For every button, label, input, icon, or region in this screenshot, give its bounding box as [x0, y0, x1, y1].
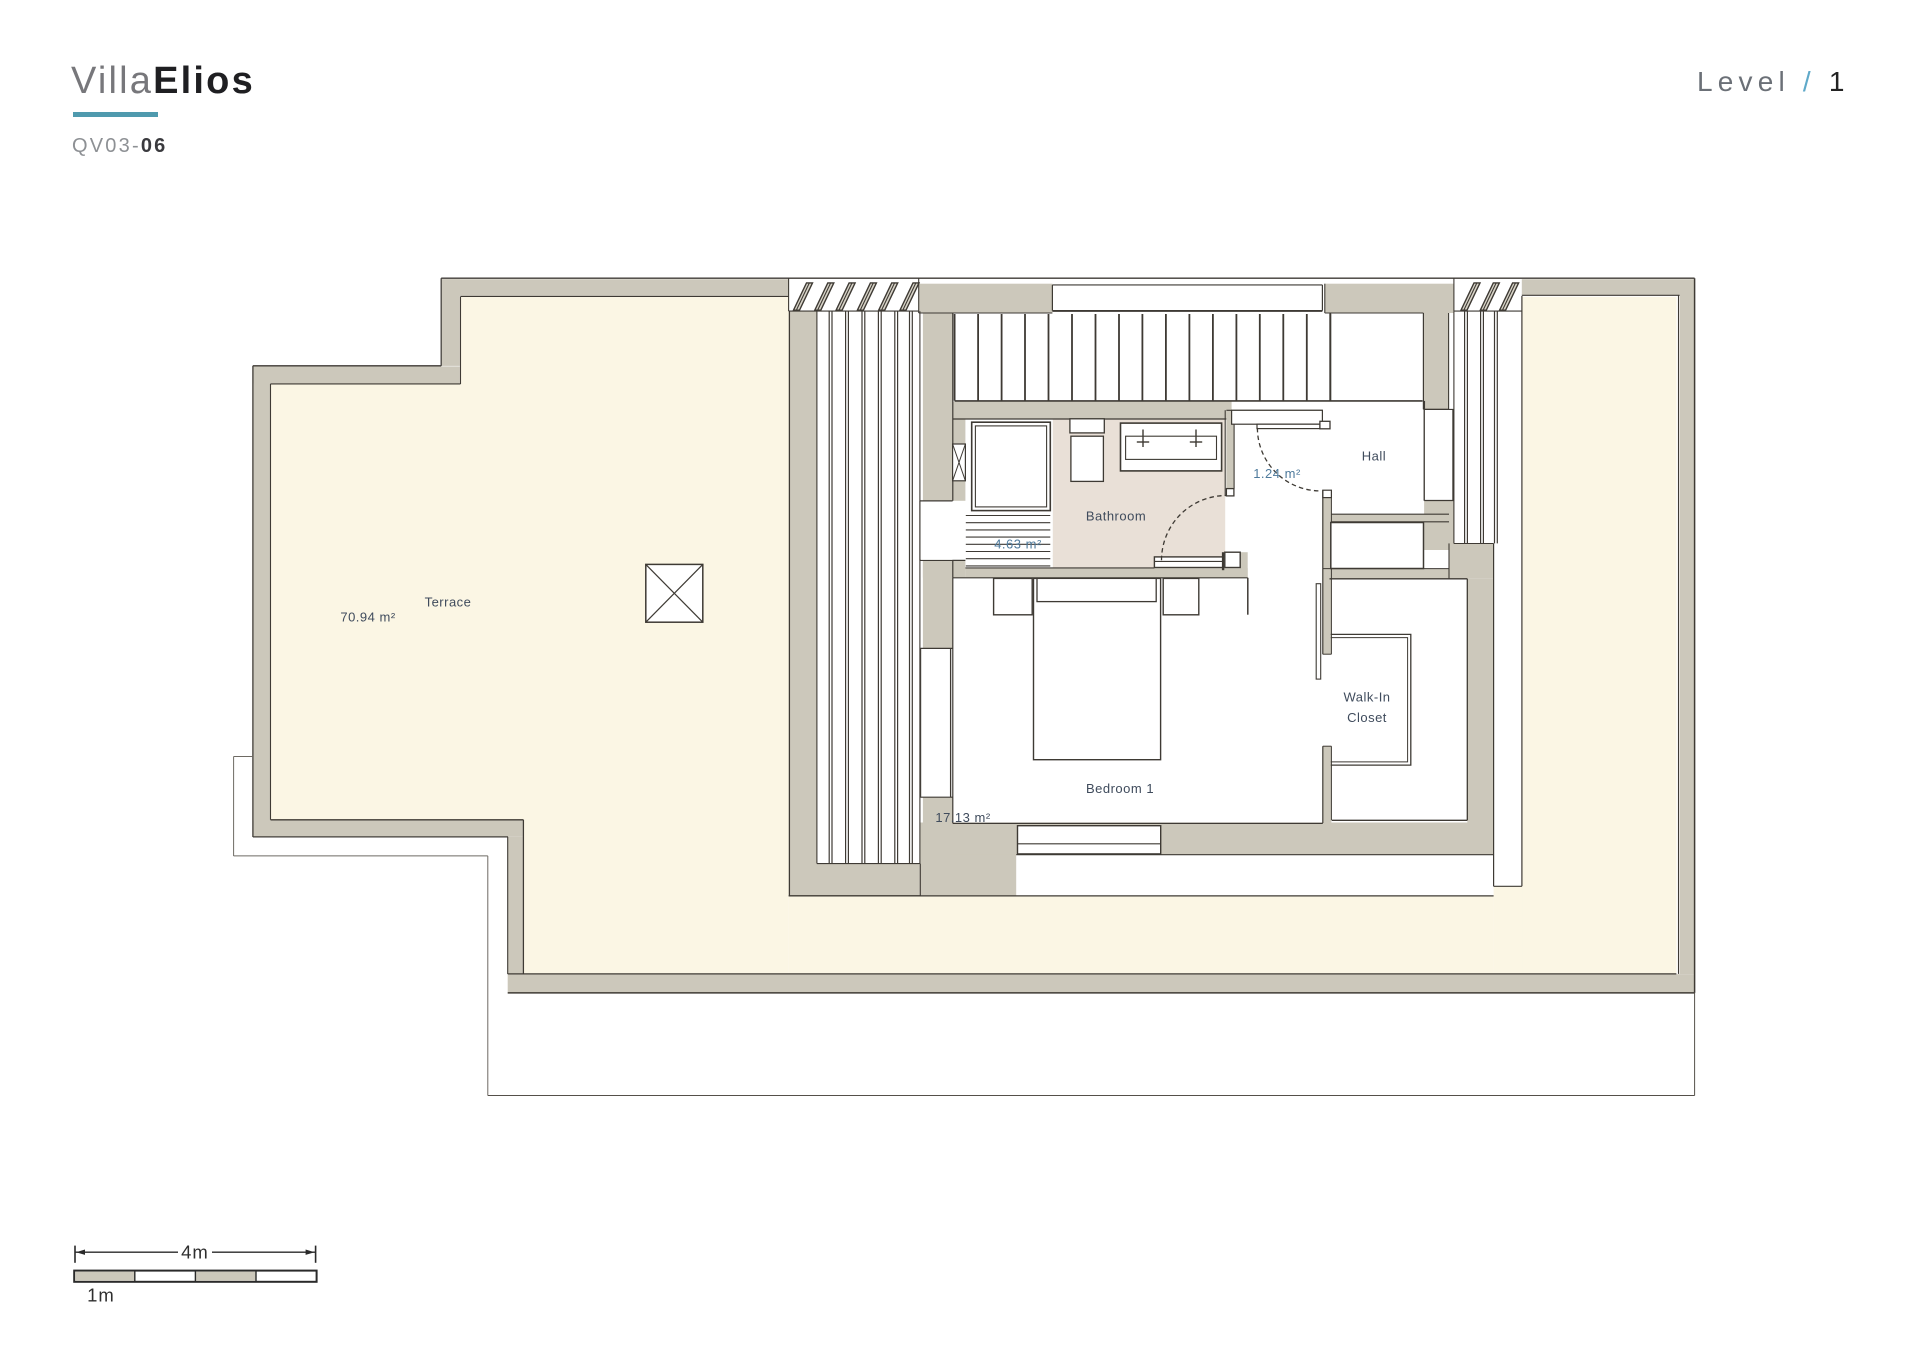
svg-text:Terrace: Terrace	[425, 595, 472, 610]
svg-text:Hall: Hall	[1362, 449, 1386, 464]
svg-text:17.13 m²: 17.13 m²	[935, 810, 990, 825]
svg-text:Bathroom: Bathroom	[1086, 509, 1146, 524]
svg-text:Closet: Closet	[1347, 710, 1387, 725]
svg-text:4m: 4m	[181, 1242, 209, 1263]
svg-text:1m: 1m	[87, 1285, 115, 1306]
svg-text:70.94 m²: 70.94 m²	[340, 610, 395, 625]
svg-text:4.63 m²: 4.63 m²	[994, 537, 1042, 552]
svg-text:1.24 m²: 1.24 m²	[1253, 466, 1301, 481]
svg-text:Walk-In: Walk-In	[1343, 690, 1390, 705]
svg-text:Bedroom 1: Bedroom 1	[1086, 781, 1154, 796]
